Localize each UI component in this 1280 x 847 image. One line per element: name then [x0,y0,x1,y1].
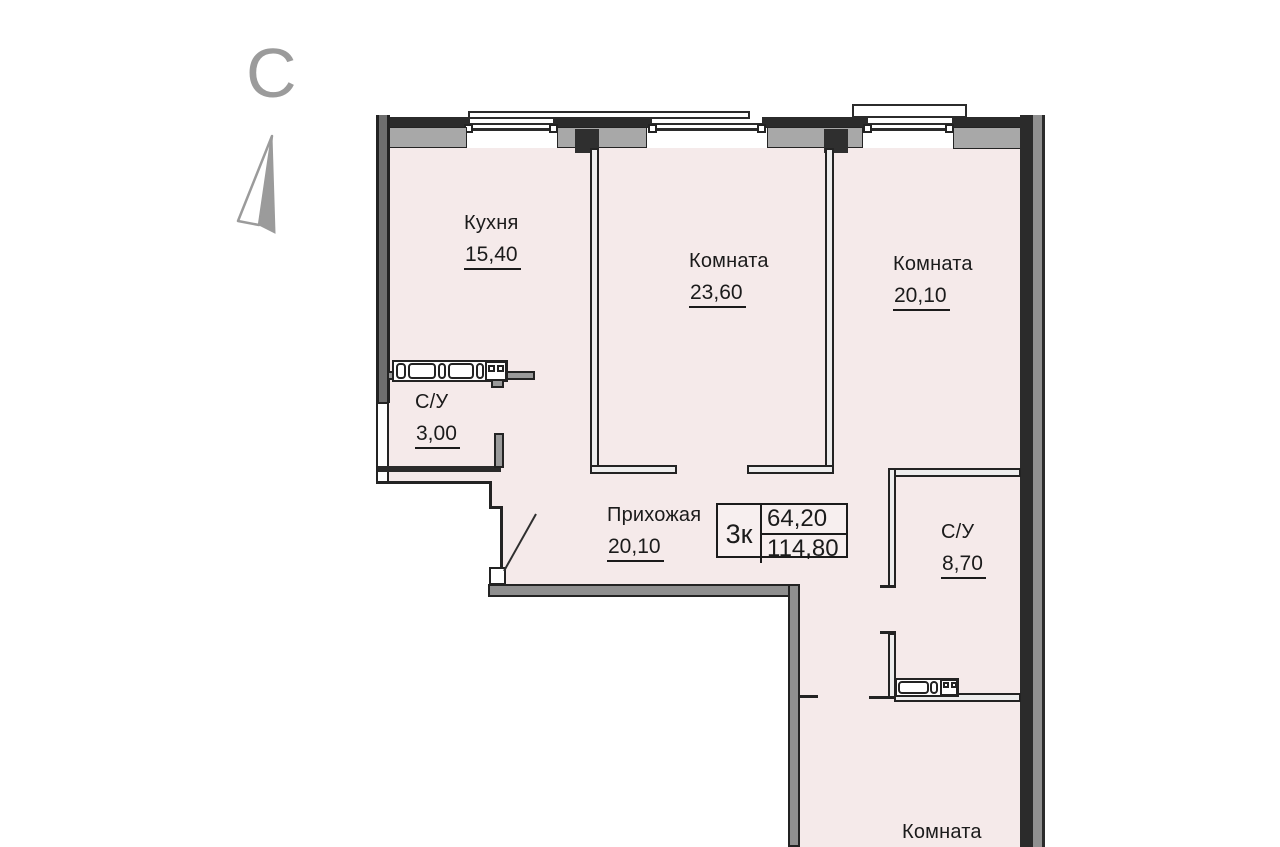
stove-burner [497,365,504,372]
room-name: Комната [893,254,973,274]
room-name: Кухня [464,213,521,233]
counter-end [491,379,504,388]
entrance-door-swing [498,507,543,575]
bathroom-sink-detail [951,682,957,688]
wall [488,584,800,597]
room-name: Прихожая [607,505,701,525]
total-area: 114,80 [762,535,846,563]
partition [747,465,834,474]
window-jamb [648,124,657,133]
bathroom-counter-segment [930,681,938,694]
room-name: С/У [941,522,986,542]
room-area: 20,10 [607,536,664,562]
room-name: С/У [415,392,460,412]
window [467,128,553,131]
room-area: 23,60 [689,282,746,308]
partition [590,465,677,474]
room-area: 15,40 [464,244,521,270]
wall [788,584,800,847]
door-jamb-tick [880,631,896,634]
partition [378,466,501,472]
door-jamb-tick [880,585,896,588]
window-jamb [863,124,872,133]
window [866,123,952,125]
window-jamb [757,124,766,133]
room-area: 20,10 [893,285,950,311]
room-label-wc-big: С/У 8,70 [941,522,986,579]
living-area: 64,20 [762,505,846,535]
partition [888,468,896,588]
window [652,123,762,125]
floor-plan: С [0,0,1280,847]
room-label-hall: Прихожая 20,10 [607,505,701,562]
room-label-living2: Комната 20,10 [893,254,973,311]
room-label-living1: Комната 23,60 [689,251,769,308]
north-label: С [246,38,297,108]
flat-summary-box: 3к 64,20 114,80 [716,503,848,558]
room-label-kitchen: Кухня 15,40 [464,213,521,270]
wall-sill [767,127,863,148]
boundary-line [489,481,492,509]
stove-burner [488,365,495,372]
kitchen-sink [408,363,436,379]
door-jamb-tick [800,695,818,698]
boundary-line [376,481,492,484]
window [467,123,553,125]
room-area: 8,70 [941,553,986,579]
room-label-living3: Комната [902,822,982,847]
kitchen-counter-segment [438,363,446,379]
wall-sill [388,127,467,148]
room-name: Комната [689,251,769,271]
door-jamb-tick [869,696,896,699]
wall [1020,115,1045,847]
kitchen-counter-segment [396,363,406,379]
bathroom-counter-segment [898,681,929,694]
bathroom-sink-detail [943,682,949,688]
kitchen-counter-segment [448,363,474,379]
window [866,128,952,131]
balcony-outline [852,104,967,118]
partition [888,468,1021,477]
wall [376,115,390,403]
north-arrow-icon [228,128,298,240]
partition [590,148,599,474]
kitchen-counter-segment [476,363,484,379]
room-label-wc-small: С/У 3,00 [415,392,460,449]
room-name: Комната [902,822,982,842]
partition [825,148,834,474]
flat-type: 3к [718,505,762,563]
wall-sill [557,127,647,148]
window [652,128,762,131]
room-area: 3,00 [415,423,460,449]
door-jamb-wall [494,433,504,468]
